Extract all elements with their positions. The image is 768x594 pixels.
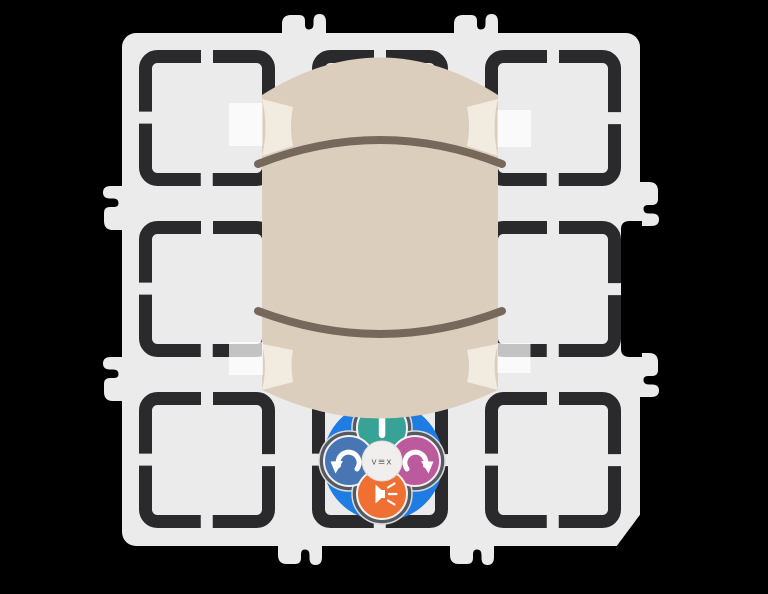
tile-connector-tab (103, 186, 124, 230)
playground-stage: v≡x (0, 0, 768, 594)
tape-patch (262, 99, 293, 156)
tile-connector-tab (278, 544, 322, 565)
playground-canvas: v≡x (0, 0, 768, 594)
tile-connector-tab (450, 544, 494, 565)
tile-connector-tab (638, 182, 659, 226)
tile-connector-tab (103, 357, 124, 401)
tube-body[interactable] (262, 58, 498, 419)
tile-connector-tab (454, 14, 498, 35)
tile-connector-tab (638, 353, 659, 397)
tape-strip (229, 103, 263, 146)
tape-patch (262, 344, 293, 390)
tape-strip (229, 342, 263, 375)
tape-patch (467, 99, 498, 156)
tile-connector-tab (282, 14, 326, 35)
tape-strip (498, 110, 532, 147)
field-edge-notch (621, 221, 642, 357)
cardboard-tube[interactable] (258, 58, 502, 419)
tape-patch (467, 344, 498, 390)
move-bar-icon (379, 416, 386, 438)
vex-logo-text: v≡x (371, 458, 392, 468)
tape-strip (498, 343, 531, 373)
